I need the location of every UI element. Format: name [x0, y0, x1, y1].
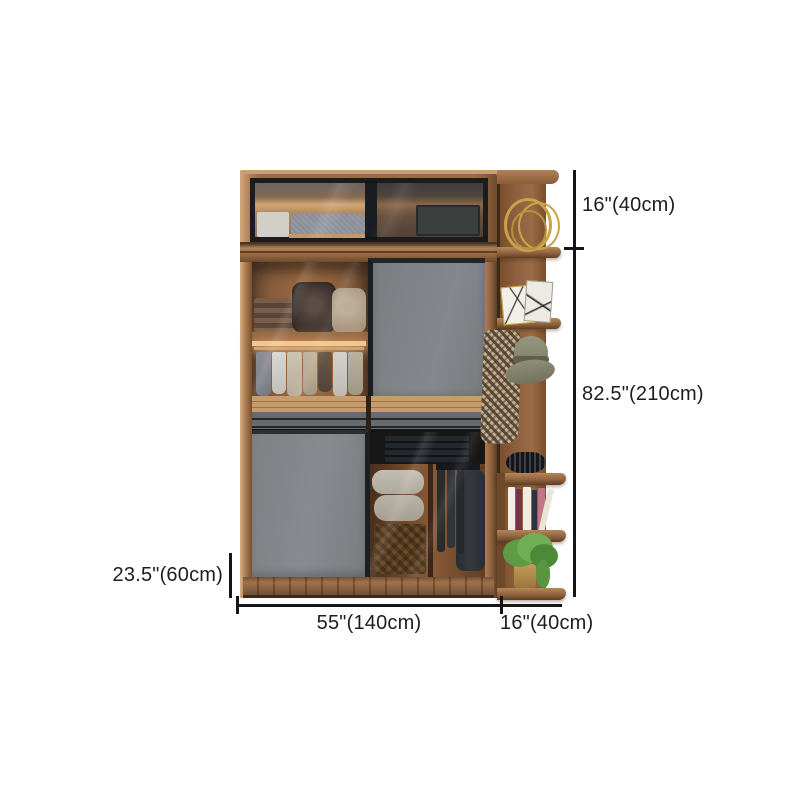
door-track-seam [366, 396, 371, 432]
upper-height-tick [564, 247, 584, 250]
lower-right-glass-door [368, 432, 485, 577]
frame-pillar-left [240, 262, 252, 598]
junction-groove [240, 251, 497, 253]
product-dimension-diagram: 16"(40cm) 82.5"(210cm) 55"(140cm) 16"(40… [0, 0, 800, 800]
upper-height-label: 16"(40cm) [582, 194, 675, 217]
plinth [243, 577, 494, 598]
width-dimension-line [237, 604, 562, 607]
book-spine [532, 490, 537, 532]
side-width-label: 16"(40cm) [500, 612, 592, 635]
gold-rings-decor [511, 210, 547, 250]
book-spine [523, 487, 531, 532]
height-dimension-line [573, 170, 576, 597]
total-height-label: 82.5"(210cm) [582, 383, 704, 406]
left-compartment-glass-door [250, 262, 368, 396]
upper-cabinet-glass-reflection [255, 183, 483, 237]
plant-trailing-vine [536, 560, 550, 588]
lower-gray-sliding-door [250, 430, 370, 577]
book-spine [508, 487, 515, 532]
corner-shelf-board [497, 588, 566, 600]
upper-gray-sliding-door [368, 258, 485, 402]
depth-dimension-line [229, 553, 232, 598]
width-label: 55"(140cm) [237, 612, 501, 635]
black-coil-decor [506, 452, 546, 473]
book-spine [516, 489, 522, 532]
column-top-board [497, 170, 559, 184]
corner-shelf-board [497, 473, 566, 485]
plant-pot [514, 564, 536, 591]
depth-label: 23.5"(60cm) [96, 564, 223, 587]
picture-frame [524, 280, 554, 323]
